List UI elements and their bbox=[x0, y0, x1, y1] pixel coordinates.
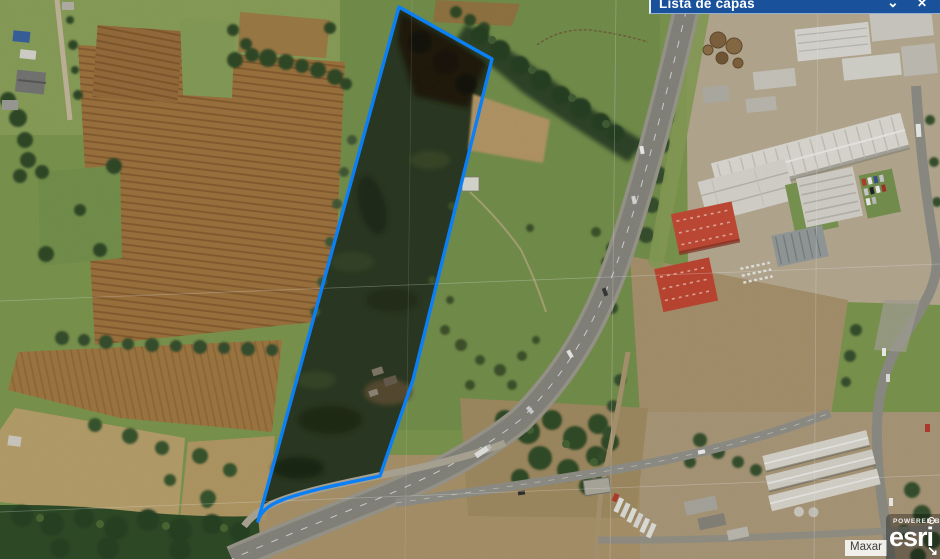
satellite-map[interactable] bbox=[0, 0, 940, 559]
expand-arrow-icon[interactable]: ↘ bbox=[927, 543, 938, 559]
esri-logo-widget: POWERED BY esri ↘ bbox=[886, 514, 940, 559]
layer-list-panel: Lista de capas ⌄ ✕ bbox=[649, 0, 940, 14]
layer-list-title: Lista de capas bbox=[659, 0, 755, 11]
chevron-down-icon[interactable]: ⌄ bbox=[887, 0, 899, 11]
texture-overlay bbox=[0, 0, 940, 559]
map-viewport: Lista de capas ⌄ ✕ Maxar POWERED BY esri… bbox=[0, 0, 940, 559]
attribution-label: Maxar bbox=[845, 540, 887, 556]
close-icon[interactable]: ✕ bbox=[917, 0, 927, 10]
